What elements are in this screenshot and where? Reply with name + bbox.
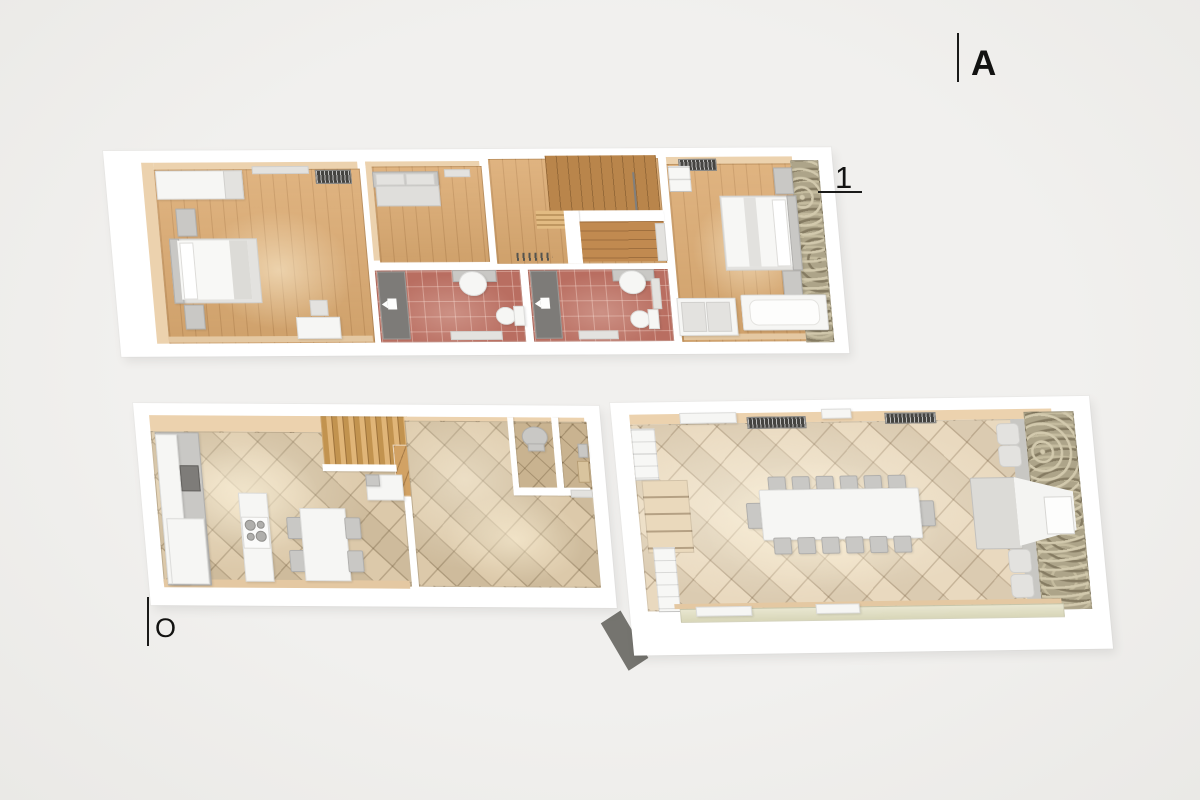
kitchen-top-wall-face [149,415,321,432]
threshold-sill [570,490,593,498]
wardrobe-side-panel [223,170,245,199]
lower-floor-label: O [155,613,176,644]
bath-mat [450,331,503,340]
window-sill [679,412,737,424]
long-dining-table [758,487,923,540]
toilet-base [527,443,545,451]
window-sill [815,603,860,614]
cooktop-burner [244,520,256,531]
toilet-tank [513,306,526,326]
wall-shelf-unit [668,166,692,192]
window-sill [696,606,753,617]
desk [296,317,342,339]
toilet-tank [647,309,660,329]
nightstand [773,167,794,194]
door-entry-arrow-icon [540,298,550,309]
floor-pouf [998,445,1023,467]
ac-vent [884,412,936,424]
cooktop-burner [246,533,255,541]
sofa-seat [375,185,441,206]
bath-mat [578,330,619,339]
dining-chair [797,537,817,554]
cooktop-burner [255,531,267,542]
cooktop-burner [256,521,265,529]
floor-plan-lower-right [610,396,1113,656]
ac-vent [315,170,352,184]
bench-cushion [681,302,708,332]
wall-shelf [444,169,471,177]
door-entry-arrow-icon [387,298,397,309]
entry-steps-down [641,480,694,554]
fireplace-firebox [1043,496,1075,534]
staircase-stringer-wall [322,464,397,471]
dressing-nook-floor [580,221,668,261]
dining-chair [347,550,365,572]
ac-vent [747,416,807,429]
landing-wall [573,210,665,221]
storage-box [577,461,591,483]
dining-chair [773,537,793,554]
sofa-cushion [375,173,405,185]
page-background: { "annotations": { "section_marker": "A"… [0,0,1200,800]
dining-chair [821,537,841,554]
floor-pouf [995,423,1020,445]
small-sink [577,444,588,458]
wall-cabinet-corner [365,474,380,486]
dining-chair [845,536,865,553]
bench-cushion [706,302,733,332]
dining-chair [344,517,362,539]
lower-floor-leader-line [147,597,149,646]
floor-plan-lower-left [133,403,617,608]
stair-top-steps [536,211,566,229]
desk-chair [309,300,328,316]
nightstand [184,304,206,329]
dining-chair [869,536,889,553]
sofa-cushion [405,173,435,185]
nook-wardrobe [655,223,668,261]
shelving-unit [630,428,659,480]
nightstand [782,270,803,296]
nightstand [175,209,197,237]
window-sill [251,166,309,174]
upper-floor-leader-line [818,191,862,193]
window-sill [821,408,852,418]
bedroom-left-bottom-wall-face [169,336,374,343]
stair-balusters [516,253,553,261]
floor-pouf [1007,549,1032,573]
floor-plan-upper [103,147,849,357]
floor-pouf [1010,574,1035,598]
stairwell-void [545,155,661,212]
storage-chest-lid [749,299,821,325]
dining-chair [893,536,913,553]
section-marker-line [957,33,959,82]
oven [179,465,200,491]
section-marker-label: A [971,44,996,84]
freezer-unit [166,518,210,584]
